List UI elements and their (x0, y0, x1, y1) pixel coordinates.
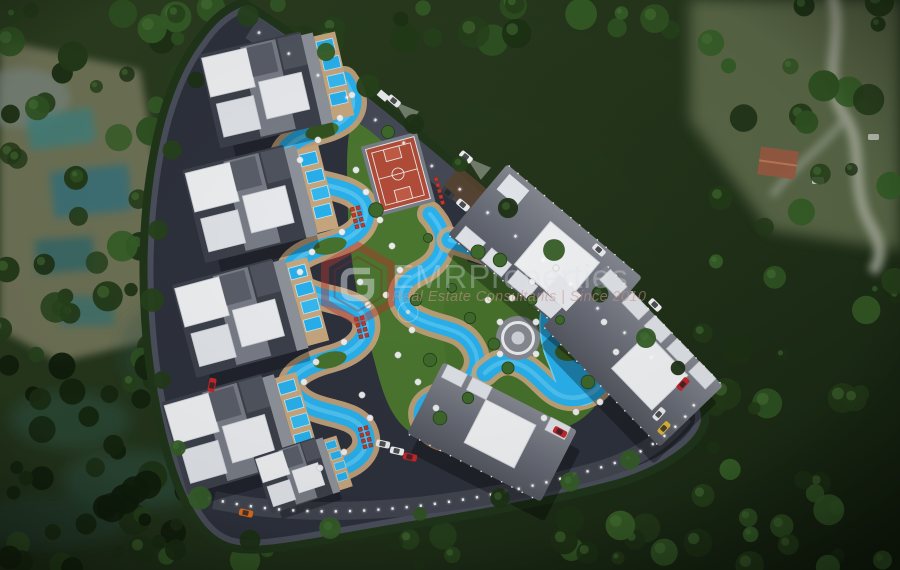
site-plan-render: EMRProperties Real Estate Consultants | … (0, 0, 900, 570)
vignette (0, 0, 900, 570)
render-canvas: EMRProperties Real Estate Consultants | … (0, 0, 900, 570)
